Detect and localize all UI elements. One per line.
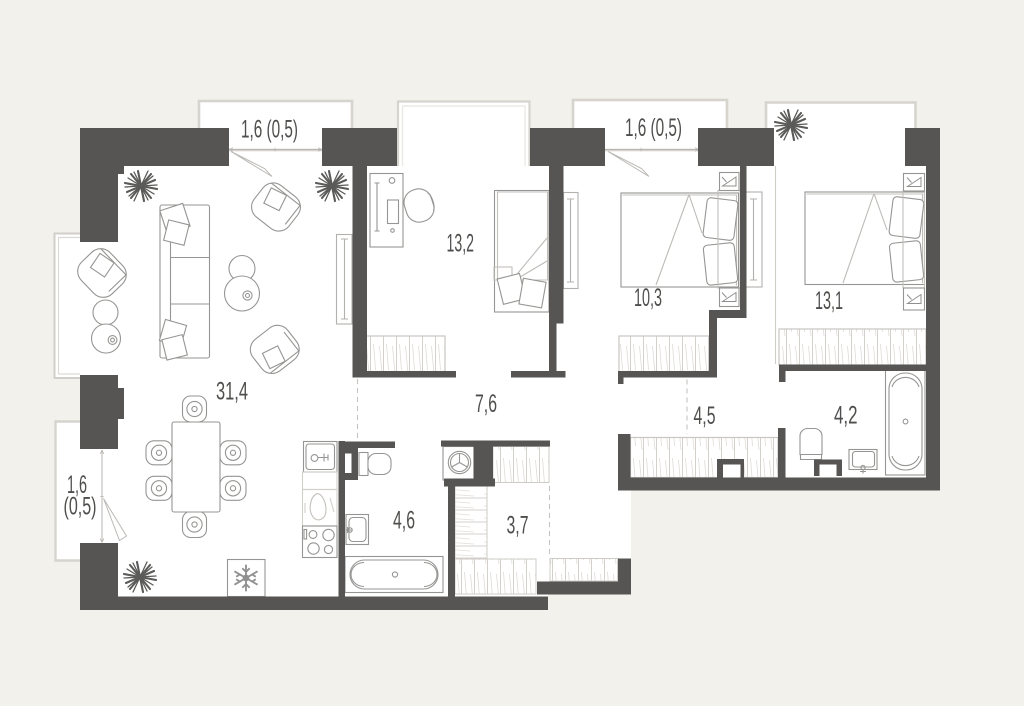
svg-text:3,7: 3,7 bbox=[507, 512, 529, 540]
svg-text:4,2: 4,2 bbox=[834, 402, 858, 430]
svg-text:4,6: 4,6 bbox=[393, 507, 415, 535]
svg-text:(0,5): (0,5) bbox=[64, 493, 97, 521]
svg-text:13,1: 13,1 bbox=[815, 287, 843, 315]
svg-text:7,6: 7,6 bbox=[475, 390, 497, 418]
svg-text:13,2: 13,2 bbox=[447, 230, 475, 258]
svg-text:4,5: 4,5 bbox=[694, 402, 716, 430]
svg-text:1,6 (0,5): 1,6 (0,5) bbox=[625, 114, 682, 142]
svg-text:31,4: 31,4 bbox=[216, 378, 248, 406]
svg-text:10,3: 10,3 bbox=[634, 284, 662, 312]
svg-text:1,6 (0,5): 1,6 (0,5) bbox=[241, 116, 298, 144]
